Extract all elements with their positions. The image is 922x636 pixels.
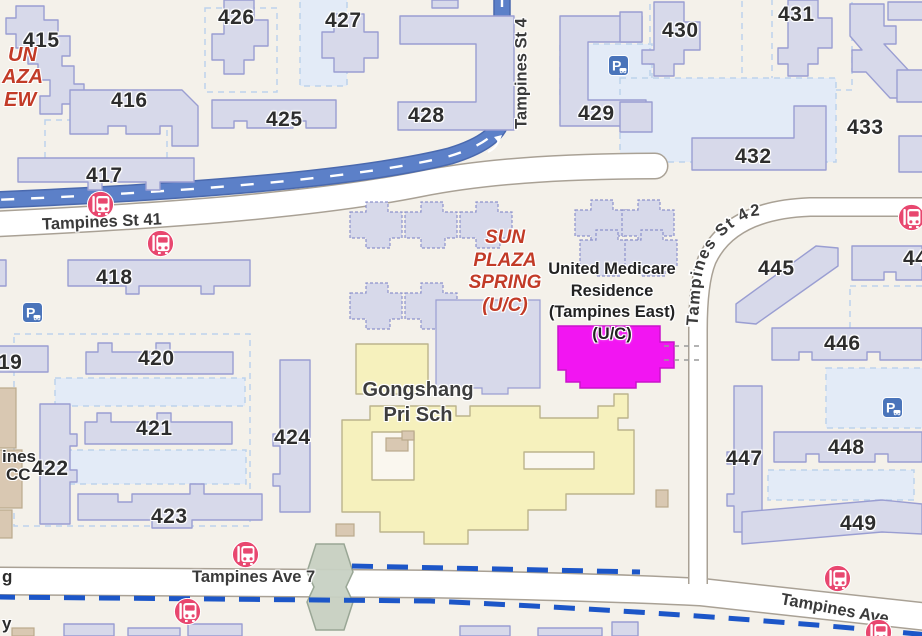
bus-stop-icon[interactable] (824, 565, 851, 592)
road-label-st4: Tampines St 4 (513, 4, 532, 144)
parking-icon[interactable]: P (882, 397, 903, 418)
poi-gongshang-pri-sch: Gongshang Pri Sch (338, 378, 498, 428)
block-label: 421 (136, 417, 173, 441)
block-label: 417 (86, 164, 123, 188)
block-label: 418 (96, 266, 133, 290)
block-label: 430 (662, 19, 699, 43)
bus-stop-icon[interactable] (865, 619, 892, 636)
block-label: 429 (578, 102, 615, 126)
bus-stop-icon[interactable] (87, 191, 114, 218)
parking-icon[interactable]: P (22, 302, 43, 323)
svg-text:P: P (886, 400, 895, 416)
block-label: 426 (218, 6, 255, 30)
bus-stop-icon[interactable] (174, 598, 201, 625)
road-label-ave7: Tampines Ave 7 (192, 568, 315, 587)
poi-united-medicare: United Medicare Residence (Tampines East… (522, 259, 702, 345)
block-label: 433 (847, 116, 884, 140)
bus-stop-icon[interactable] (147, 230, 174, 257)
block-label: 428 (408, 104, 445, 128)
block-label: 416 (111, 89, 148, 113)
edge-text-fragment: y (2, 614, 11, 634)
block-label: 424 (274, 426, 311, 450)
edge-text-fragment: g (2, 567, 12, 587)
block-label: 427 (325, 9, 362, 33)
svg-text:P: P (26, 305, 35, 321)
poi-cc-fragment: ines (2, 447, 36, 467)
poi-sun-plaza-view-fragment: EW (4, 89, 36, 112)
block-label: 44 (903, 247, 922, 271)
poi-cc-fragment: CC (6, 465, 31, 485)
block-label: 422 (32, 457, 69, 481)
poi-sun-plaza-view-fragment: AZA (2, 66, 43, 89)
block-label: 19 (0, 351, 22, 375)
block-label: 445 (758, 257, 795, 281)
block-label: 431 (778, 3, 815, 27)
bus-stop-icon[interactable] (232, 541, 259, 568)
svg-text:P: P (612, 58, 621, 74)
block-label: 423 (151, 505, 188, 529)
block-label: 425 (266, 108, 303, 132)
pedestrian-overpass (307, 544, 353, 630)
bus-stop-icon[interactable] (898, 204, 922, 231)
block-label: 447 (726, 447, 763, 471)
block-label: 449 (840, 512, 877, 536)
poi-sun-plaza-view-fragment: UN (8, 44, 37, 67)
block-label: 420 (138, 347, 175, 371)
block-label: 448 (828, 436, 865, 460)
block-label: 432 (735, 145, 772, 169)
block-label: 446 (824, 332, 861, 356)
map-canvas[interactable]: Tampines St 42 415 416 417 418 19 420 42… (0, 0, 922, 636)
parking-icon[interactable]: P (608, 55, 629, 76)
